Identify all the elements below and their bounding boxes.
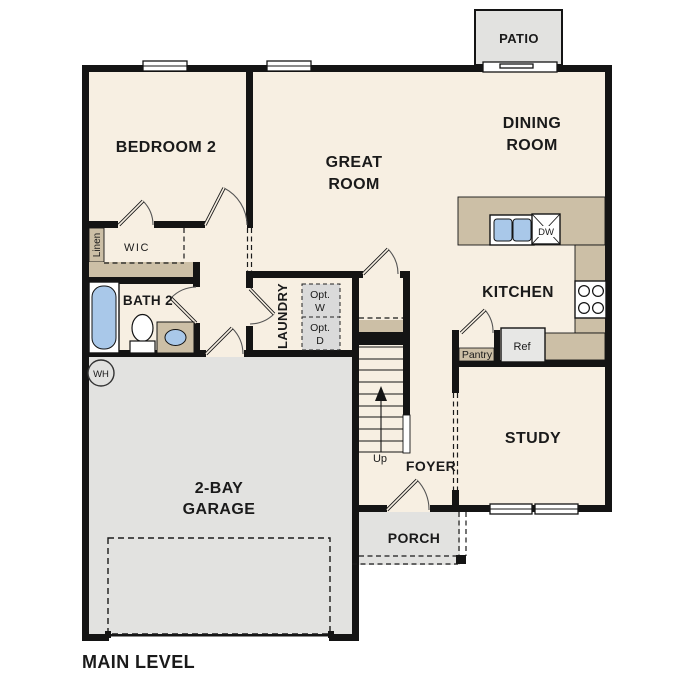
sink-basin-left [494,219,512,241]
patio-slider-panel [500,64,533,68]
garage-door-post-right [328,631,334,638]
floor-plan-drawing: PATIO BEDROOM 2 GREAT ROOM DINING ROOM K… [0,0,687,687]
label-dining-room-2: ROOM [506,137,557,154]
label-dining-room-1: DINING [503,115,561,132]
label-up: Up [373,453,387,465]
label-water-heater: WH [93,369,109,380]
wall-garage-bottom-left [82,634,109,641]
toilet-tank [130,341,155,353]
label-kitchen: KITCHEN [482,284,554,301]
label-opt-washer-1: Opt. [310,289,330,301]
hall-accent-strip [89,262,193,278]
opening-stair-closet [363,271,400,278]
label-porch: PORCH [388,530,441,546]
opening-hall [205,221,247,228]
wall-pantry-right [494,330,500,361]
label-bedroom2: BEDROOM 2 [116,139,217,156]
toilet-bowl [132,315,153,342]
burner [593,286,604,297]
label-garage-2: GARAGE [183,501,256,518]
counter-right-upper [575,245,606,281]
stair-landing [359,320,403,332]
porch-column [456,555,466,564]
label-wic: WIC [124,242,150,254]
label-great-room-2: ROOM [328,176,379,193]
tub [92,286,116,349]
burner [579,303,590,314]
level-title: MAIN LEVEL [82,652,195,672]
label-opt-washer-2: W [315,302,325,314]
burner [579,286,590,297]
opening-laundry [246,288,253,326]
label-refrigerator: Ref [513,341,531,353]
label-pantry: Pantry [462,349,493,361]
label-opt-dryer-1: Opt. [310,322,330,334]
label-foyer: FOYER [406,458,456,474]
label-great-room-1: GREAT [326,154,383,171]
label-opt-dryer-2: D [316,335,324,347]
stair-entry-door [403,415,410,453]
wall-stairs-right [403,271,410,416]
label-patio: PATIO [499,31,539,46]
counter-bottom [545,333,605,360]
label-dishwasher: DW [538,227,554,238]
wall-stair-band [359,332,403,345]
burner [593,303,604,314]
opening-front-door [387,505,430,512]
counter-right-lower [575,318,606,333]
vanity-sink [165,330,186,346]
wall-bedroom-right [246,65,253,228]
wall-study-left-stub [452,490,459,512]
wall-garage-right [352,271,359,641]
label-study: STUDY [505,430,561,447]
label-laundry: LAUNDRY [275,283,290,349]
sink-basin-right [513,219,531,241]
garage-door-post-left [105,631,111,638]
opening-bath2 [193,287,200,323]
floor-plan: PATIO BEDROOM 2 GREAT ROOM DINING ROOM K… [0,0,687,687]
label-linen: Linen [92,233,103,257]
opening-garage-entry [206,350,244,357]
label-garage-1: 2-BAY [195,480,244,497]
label-bath2: BATH 2 [123,293,173,308]
